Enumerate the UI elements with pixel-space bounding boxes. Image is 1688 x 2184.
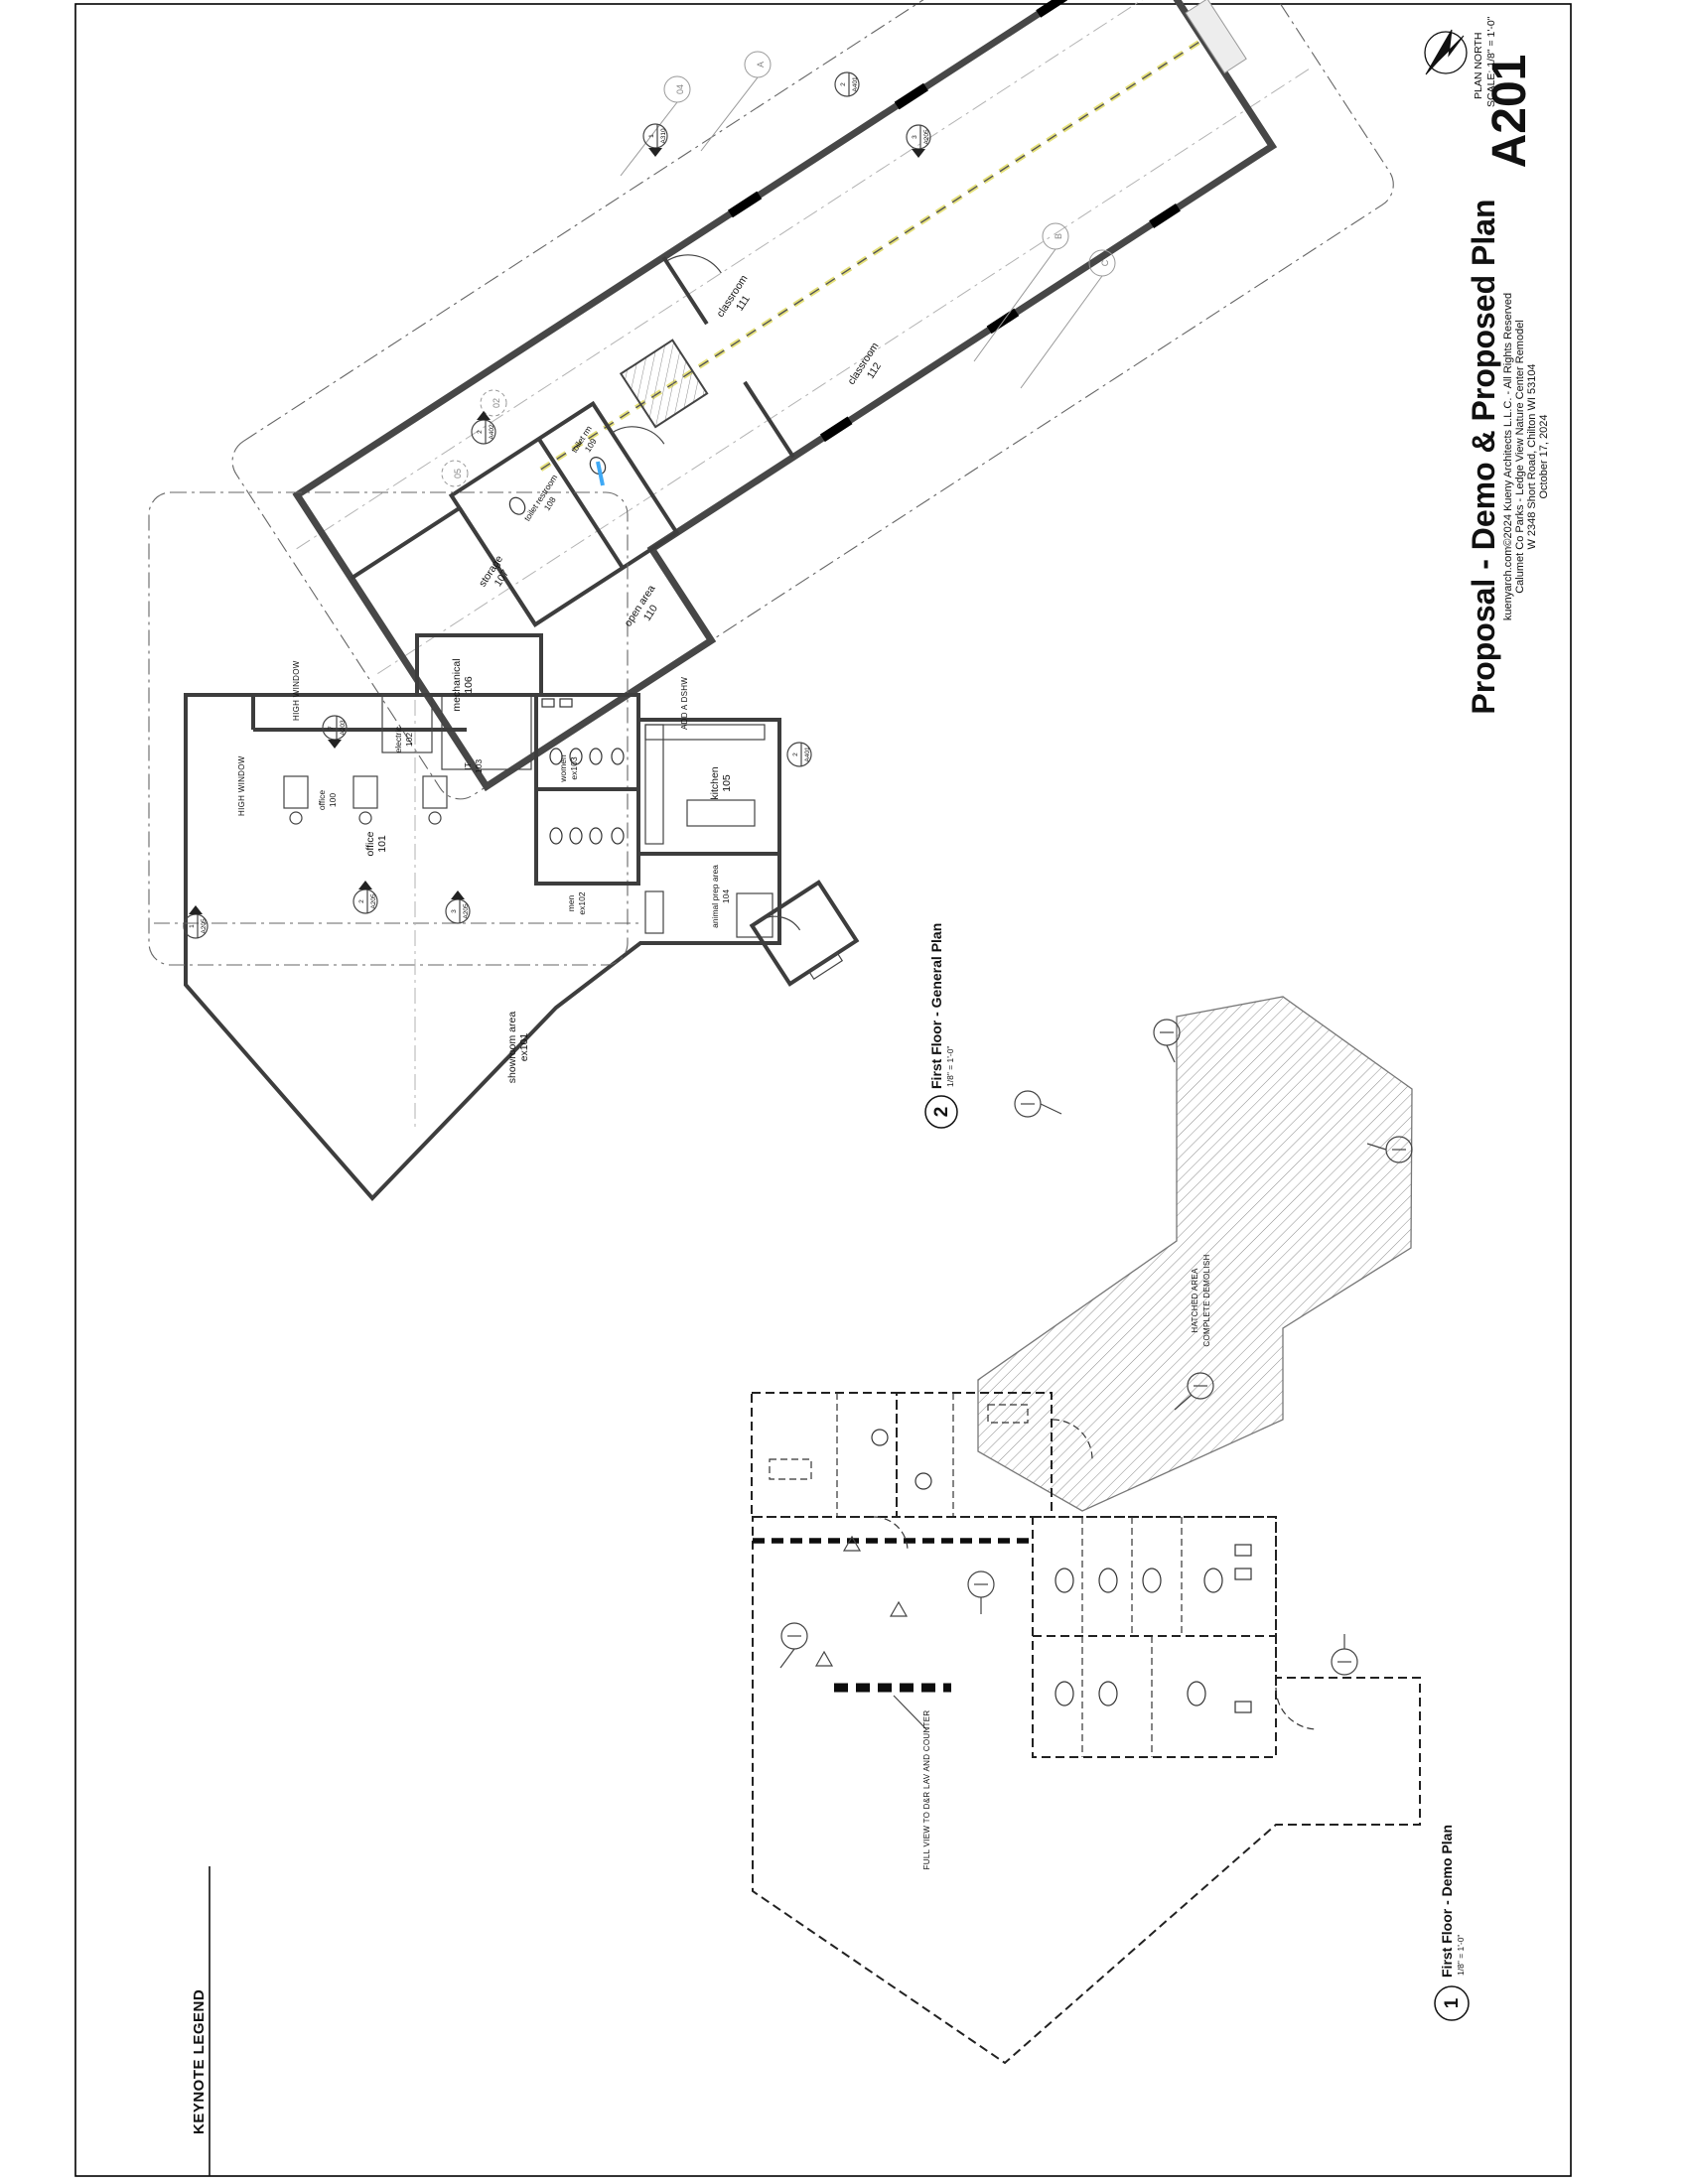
viewport-scale: 1/8" = 1'-0" (945, 1046, 955, 1087)
dishwasher-note: ADD A DSHW (680, 677, 689, 730)
svg-text:COMPLETE DEMOLISH: COMPLETE DEMOLISH (1202, 1254, 1211, 1346)
sheet-title: Proposal - Demo & Proposed Plan (1466, 199, 1501, 714)
room-label: electric (393, 726, 403, 753)
date-line: October 17, 2024 (1538, 414, 1550, 498)
svg-text:104: 104 (721, 889, 731, 903)
svg-text:A402: A402 (489, 424, 495, 440)
svg-text:3: 3 (451, 909, 458, 913)
svg-text:3: 3 (912, 135, 918, 139)
viewport-number: 1 (1442, 1997, 1463, 2008)
svg-text:A205: A205 (463, 903, 470, 919)
svg-text:A205: A205 (370, 893, 377, 909)
room-label: kitchen (709, 766, 721, 799)
svg-text:HATCHED AREA: HATCHED AREA (1191, 1268, 1199, 1333)
room-label: animal prep area (710, 865, 720, 928)
svg-text:1: 1 (189, 924, 196, 928)
svg-text:ex103: ex103 (569, 756, 579, 779)
drawing-sheet: A 04 B C 02 05 1A310 2A401 3A205 2A402 7… (0, 0, 1688, 2184)
grid-bubble-05: 05 (453, 469, 463, 478)
copyright-line: kuenyarch.com©2024 Kueny Architects L.L.… (1502, 293, 1514, 620)
svg-text:2: 2 (477, 430, 484, 434)
svg-text:100: 100 (328, 793, 338, 807)
room-label: office (317, 790, 327, 810)
room-label: showroom area (506, 1012, 518, 1084)
svg-text:7: 7 (328, 726, 335, 730)
svg-text:2: 2 (840, 82, 847, 86)
svg-text:101: 101 (376, 835, 388, 853)
grid-bubble-a: A (756, 62, 766, 68)
room-label: office (364, 831, 376, 856)
address-line: W 2348 Short Road, Chilton WI 53104 (1526, 363, 1538, 549)
svg-text:106: 106 (463, 676, 475, 694)
svg-text:A203: A203 (340, 720, 347, 736)
high-window-note: HIGH WINDOW (292, 660, 301, 721)
svg-text:A401: A401 (852, 76, 859, 92)
svg-text:1: 1 (648, 134, 655, 138)
grid-bubble-04: 04 (675, 84, 685, 94)
viewport-number: 2 (931, 1107, 952, 1118)
room-label: IT (463, 762, 473, 770)
room-label: men (566, 894, 576, 911)
grid-bubble-c: C (1100, 259, 1110, 266)
svg-text:105: 105 (721, 774, 733, 792)
room-label: women (558, 754, 568, 783)
svg-text:A401: A401 (804, 747, 811, 762)
svg-text:A205: A205 (923, 129, 930, 145)
svg-text:ex101: ex101 (518, 1033, 530, 1062)
project-line: Calumet Co Parks - Ledge View Nature Cen… (1514, 320, 1526, 594)
grid-bubble-02: 02 (492, 398, 501, 408)
svg-text:A310: A310 (660, 128, 667, 144)
high-window-note-2: HIGH WINDOW (237, 755, 246, 816)
keynote-legend-title: KEYNOTE LEGEND (191, 1989, 208, 2134)
svg-text:ex102: ex102 (577, 891, 587, 914)
svg-text:2: 2 (358, 899, 365, 903)
svg-text:102: 102 (404, 733, 414, 747)
svg-text:103: 103 (474, 759, 484, 773)
sheet-number: A201 (1483, 55, 1536, 169)
viewport-title: First Floor - Demo Plan (1439, 1825, 1455, 1978)
svg-text:A205: A205 (201, 918, 208, 934)
viewport-title: First Floor - General Plan (928, 923, 944, 1089)
viewport-scale: 1/8" = 1'-0" (1456, 1935, 1466, 1976)
svg-text:2: 2 (792, 752, 799, 756)
full-view-note: FULL VIEW TO D&R LAV AND COUNTER (922, 1710, 931, 1870)
room-label: mechanical (451, 658, 463, 711)
grid-bubble-b: B (1054, 233, 1063, 239)
